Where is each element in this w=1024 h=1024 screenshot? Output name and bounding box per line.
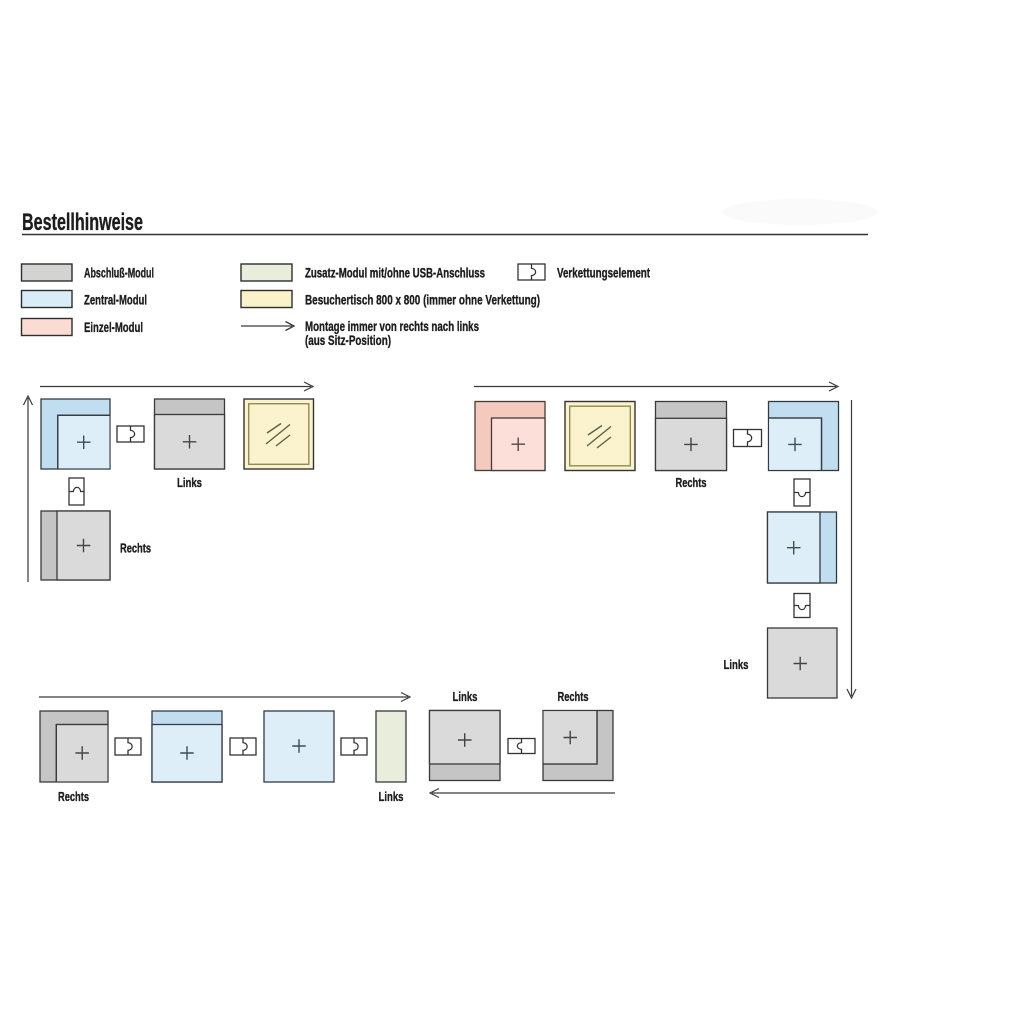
svg-text:Rechts: Rechts — [558, 689, 589, 704]
svg-text:Rechts: Rechts — [120, 541, 151, 556]
svg-text:Rechts: Rechts — [676, 475, 707, 490]
svg-text:Zentral-Modul: Zentral-Modul — [84, 293, 147, 308]
svg-text:Besuchertisch 800 x 800 (immer: Besuchertisch 800 x 800 (immer ohne Verk… — [305, 293, 540, 308]
svg-text:Einzel-Modul: Einzel-Modul — [84, 320, 143, 335]
svg-text:Verkettungselement: Verkettungselement — [557, 266, 650, 281]
svg-text:(aus Sitz-Position): (aus Sitz-Position) — [305, 333, 391, 348]
svg-text:Links: Links — [379, 789, 404, 804]
svg-text:Zusatz-Modul mit/ohne USB-Ansc: Zusatz-Modul mit/ohne USB-Anschluss — [305, 266, 485, 281]
svg-text:Links: Links — [453, 689, 478, 704]
svg-text:Links: Links — [177, 475, 202, 490]
svg-text:Abschluß-Modul: Abschluß-Modul — [84, 266, 154, 281]
svg-text:Bestellhinweise: Bestellhinweise — [22, 209, 143, 236]
svg-text:Montage immer von rechts nach: Montage immer von rechts nach links — [305, 319, 479, 334]
svg-text:Links: Links — [724, 657, 749, 672]
svg-text:Rechts: Rechts — [58, 789, 89, 804]
